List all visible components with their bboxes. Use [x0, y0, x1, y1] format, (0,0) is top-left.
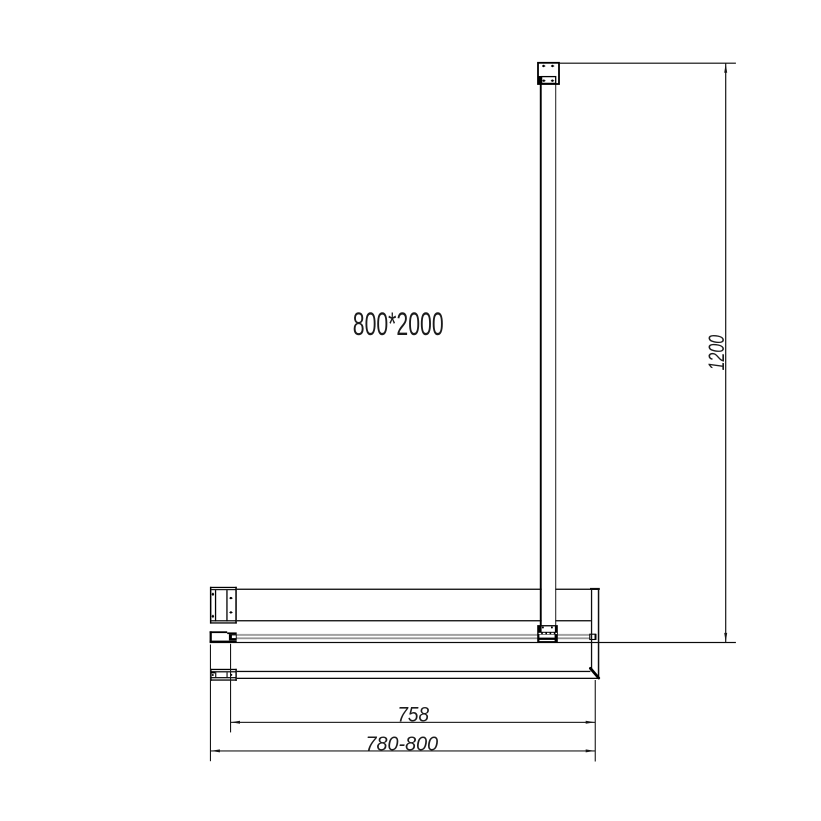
svg-text:800*2000: 800*2000: [353, 305, 444, 342]
svg-text:1200: 1200: [704, 335, 729, 371]
svg-text:758: 758: [397, 704, 429, 727]
svg-text:780-800: 780-800: [365, 733, 438, 755]
